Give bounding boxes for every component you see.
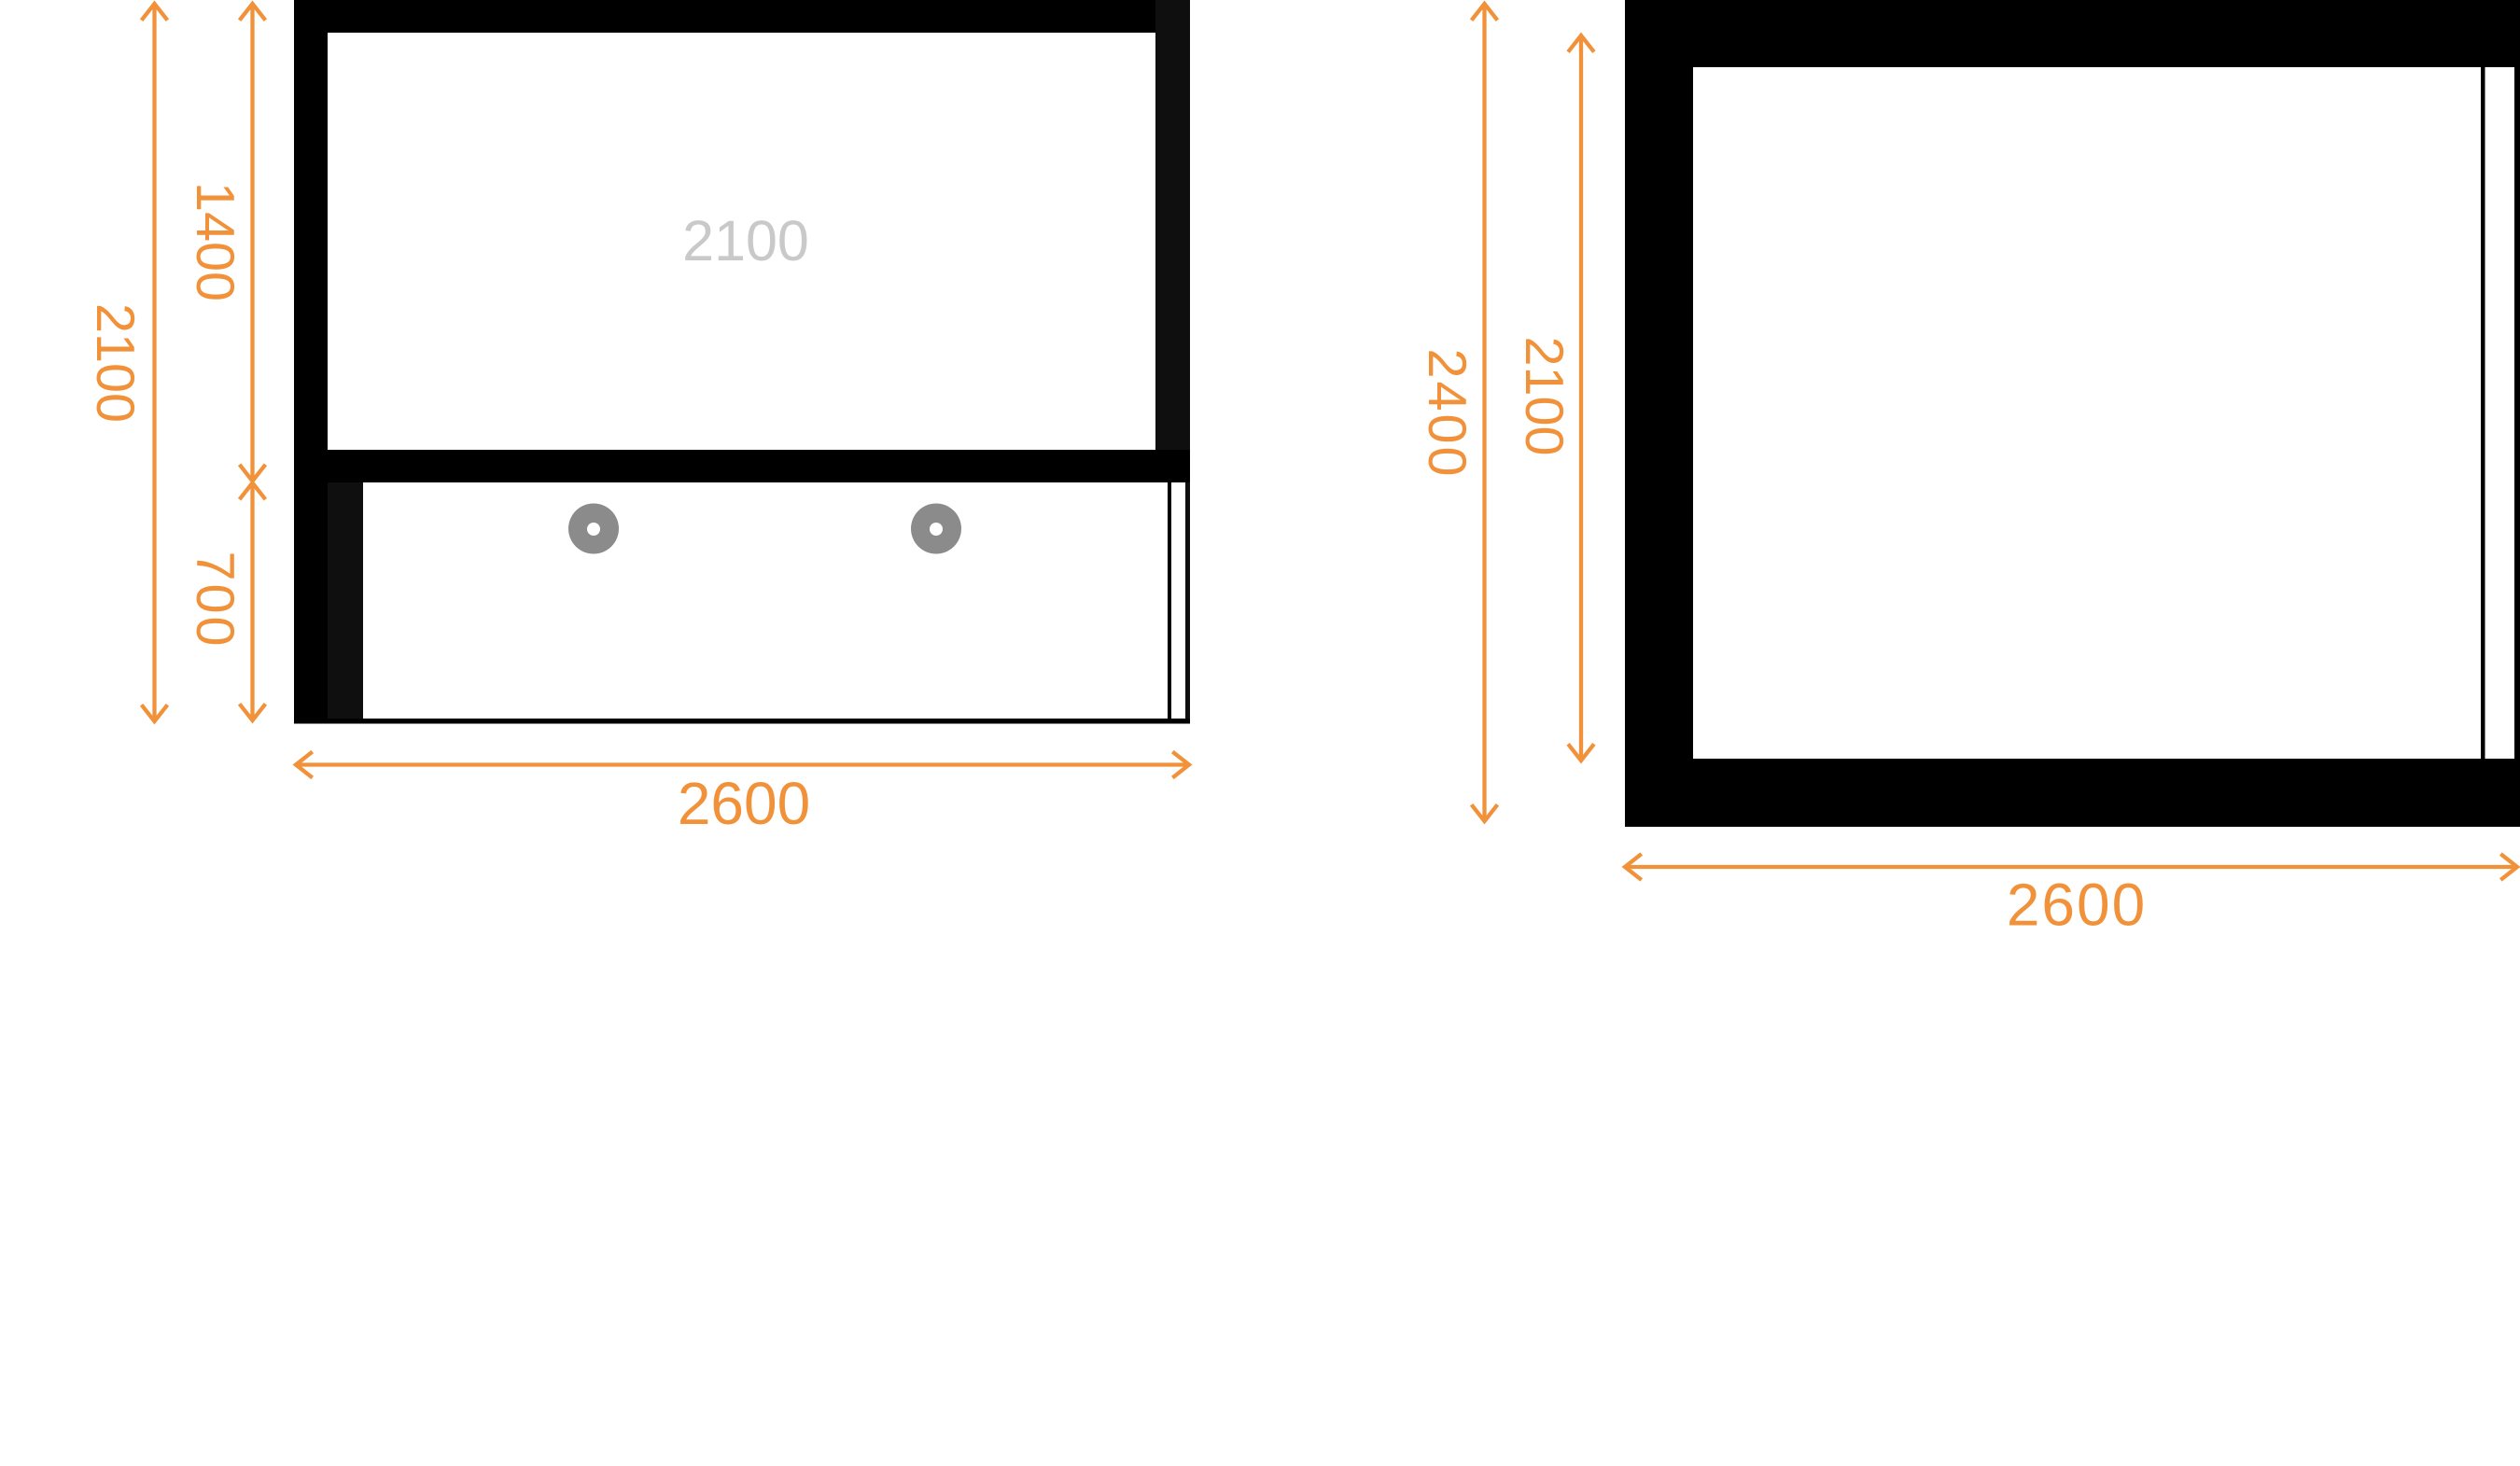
svg-text:2100: 2100 [682, 209, 809, 272]
svg-text:2600: 2600 [2007, 872, 2147, 939]
svg-text:2100: 2100 [85, 303, 145, 423]
svg-text:2600: 2600 [678, 770, 810, 837]
svg-text:2400: 2400 [1417, 348, 1477, 479]
svg-text:700: 700 [185, 551, 245, 649]
svg-text:1400: 1400 [185, 182, 245, 301]
svg-text:2100: 2100 [1514, 336, 1574, 455]
